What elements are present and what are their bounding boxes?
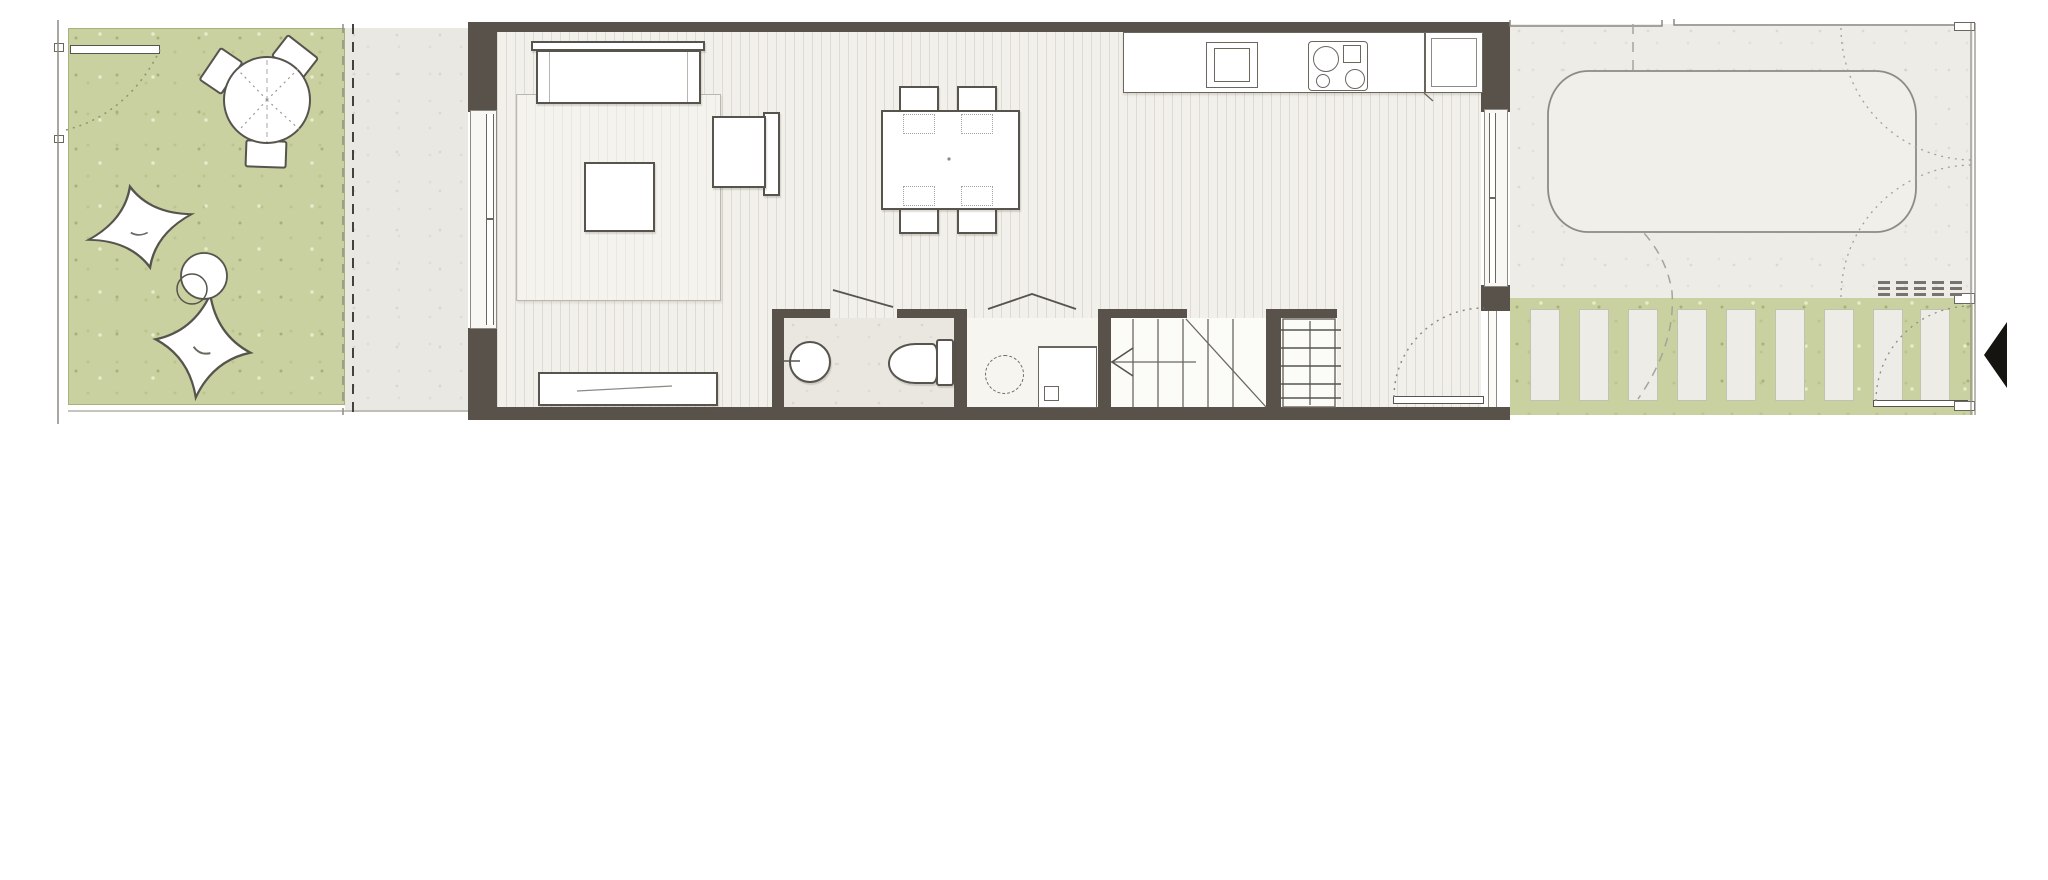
kitchen-tall-cabinet-inner [1431, 38, 1477, 87]
toilet-cistern [936, 339, 954, 386]
utility-small-box [1044, 386, 1059, 401]
wall-bathroom-top-a [772, 309, 830, 318]
washbasin [789, 341, 831, 383]
armchair-seat [712, 116, 766, 188]
wall-stairs-top [1098, 309, 1187, 318]
boundary-mark [54, 135, 64, 143]
wall-wardrobe-top [1266, 309, 1337, 318]
wall-north [468, 22, 1510, 32]
cooktop-burner [1345, 69, 1365, 89]
coffee-table [584, 162, 655, 232]
sofa [536, 50, 701, 104]
path-paver [1677, 309, 1707, 401]
wall-west-upper [468, 22, 497, 112]
chair-seat-dotted [903, 186, 935, 206]
window-east-frame [1484, 109, 1508, 287]
wall-east-mid [1481, 285, 1510, 311]
wall-bathroom-right [954, 309, 967, 408]
garden-wall-segment [70, 45, 160, 54]
dining-chair [899, 208, 939, 234]
stairs-floor [1111, 318, 1266, 407]
cooktop-burner [1316, 74, 1330, 88]
fence-post [1954, 401, 1975, 411]
driveway-paving [1510, 24, 1973, 298]
sofa-armrest-line [549, 52, 550, 102]
terrace-paving [345, 28, 468, 412]
washing-machine [985, 355, 1024, 394]
fence-post [1954, 293, 1975, 304]
sofa-armrest-line [687, 52, 688, 102]
fence-post [1954, 22, 1975, 31]
wall-stairs-left [1098, 309, 1111, 408]
window-west-mullion [486, 218, 494, 220]
path-paver [1579, 309, 1609, 401]
wardrobe-floor [1281, 318, 1337, 407]
garden-lawn [68, 28, 345, 405]
wall-south [468, 407, 1510, 420]
toilet-bowl [888, 343, 938, 384]
wall-west-lower [468, 328, 497, 420]
wall-stairs-right [1266, 309, 1281, 408]
cooktop-burner [1313, 46, 1339, 72]
path-paver [1628, 309, 1658, 401]
boundary-mark [54, 43, 64, 52]
path-paver [1824, 309, 1854, 401]
path-paver [1775, 309, 1805, 401]
entry-door-leaf [1393, 396, 1484, 404]
dining-chair [957, 86, 997, 112]
wall-bathroom-left [772, 309, 784, 408]
chair-seat-dotted [961, 114, 993, 134]
path-paver [1530, 309, 1560, 401]
kitchen-counter [1123, 32, 1425, 93]
chair-seat-dotted [961, 186, 993, 206]
chair-seat-dotted [903, 114, 935, 134]
entrance-arrow-icon [1984, 322, 2007, 388]
kitchen-sink-basin [1214, 48, 1250, 82]
dining-chair [957, 208, 997, 234]
wall-east-upper [1481, 22, 1510, 112]
window-east-mullion [1489, 197, 1496, 199]
tv-sideboard [538, 372, 718, 406]
path-paver [1920, 309, 1950, 401]
entry-door-frame [1488, 311, 1497, 407]
dining-chair [899, 86, 939, 112]
dining-table [881, 110, 1020, 210]
path-paver [1726, 309, 1756, 401]
path-paver [1873, 309, 1903, 401]
floor-plan-canvas [0, 0, 2048, 880]
cooktop-burner-square [1343, 45, 1361, 63]
